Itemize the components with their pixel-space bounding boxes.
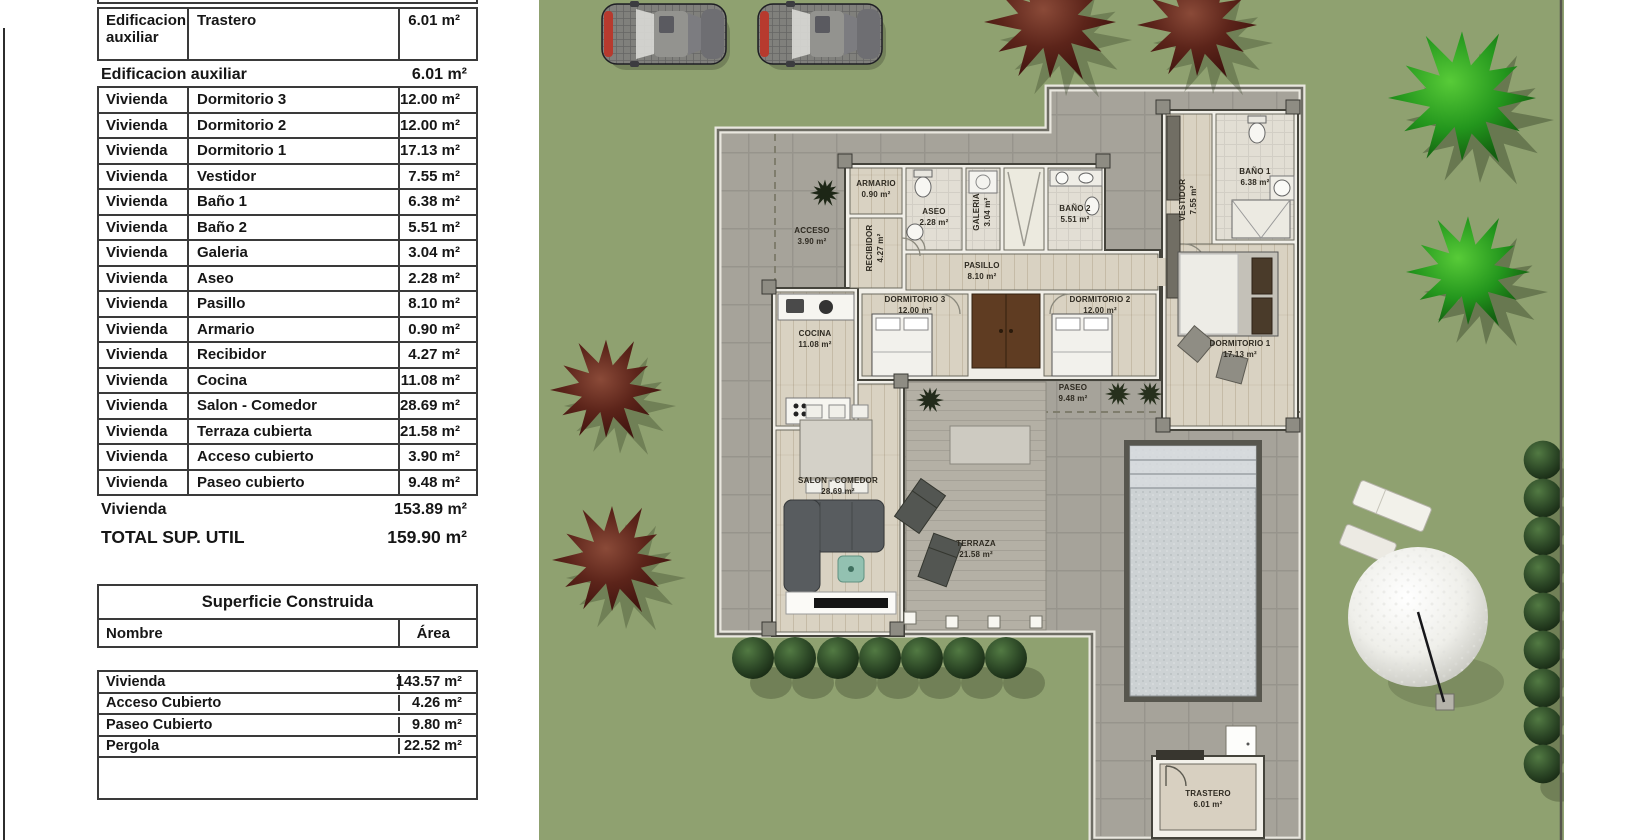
table-row: Vivienda Cocina 11.08 m² bbox=[97, 367, 478, 395]
table-row: Vivienda Paseo cubierto 9.48 m² bbox=[97, 469, 478, 497]
room-label-dormitorio2: DORMITORIO 212.00 m² bbox=[1070, 295, 1131, 317]
pool bbox=[1124, 440, 1262, 702]
washer-icon bbox=[969, 171, 997, 193]
table-row: Vivienda Vestidor 7.55 m² bbox=[97, 163, 478, 191]
table-header-row: Nombre Área bbox=[97, 618, 478, 648]
table-row: Pergola 22.52 m² bbox=[97, 735, 478, 759]
table-gap bbox=[97, 648, 478, 672]
shower-icon bbox=[1232, 200, 1290, 238]
table-superficie-construida: Superficie Construida Nombre Área Vivien… bbox=[97, 584, 478, 800]
room-label-trastero: TRASTERO6.01 m² bbox=[1185, 789, 1231, 811]
table-row: Vivienda Dormitorio 1 17.13 m² bbox=[97, 137, 478, 165]
table-row: Vivienda 143.57 m² bbox=[97, 670, 478, 694]
table-row: Vivienda Terraza cubierta 21.58 m² bbox=[97, 418, 478, 446]
sink-icon bbox=[1056, 172, 1068, 184]
table-row: Edificacion auxiliar Trastero 6.01 m² bbox=[97, 7, 478, 61]
room-label-dormitorio1: DORMITORIO 117.13 m² bbox=[1210, 339, 1271, 361]
toilet-icon bbox=[914, 170, 932, 177]
sink-icon bbox=[1274, 180, 1290, 196]
car-icon bbox=[602, 1, 730, 70]
col-header-nombre: Nombre bbox=[99, 620, 398, 646]
total-superficie-util: TOTAL SUP. UTIL 159.90 m² bbox=[97, 523, 478, 550]
cell-area: 6.01 m² bbox=[398, 9, 476, 59]
table-row: Vivienda Galeria 3.04 m² bbox=[97, 239, 478, 267]
table-row: Acceso Cubierto 4.26 m² bbox=[97, 692, 478, 716]
terrace-table-icon bbox=[950, 426, 1030, 464]
table-row: Vivienda Baño 1 6.38 m² bbox=[97, 188, 478, 216]
room-label-bano1: BAÑO 16.38 m² bbox=[1239, 167, 1270, 189]
room-label-armario: ARMARIO0.90 m² bbox=[856, 179, 896, 201]
table-row: Vivienda Aseo 2.28 m² bbox=[97, 265, 478, 293]
floor-plan-document: Edificacion auxiliar Trastero 6.01 m² Ed… bbox=[0, 0, 1638, 840]
table-superficie-util: Edificacion auxiliar Trastero 6.01 m² Ed… bbox=[97, 0, 478, 550]
sun-lounger-icon bbox=[1352, 480, 1432, 533]
table-row: Vivienda Recibidor 4.27 m² bbox=[97, 341, 478, 369]
table-row-clipped-top bbox=[97, 0, 478, 4]
sink-icon bbox=[1079, 173, 1093, 183]
subtotal-vivienda: Vivienda 153.89 m² bbox=[97, 496, 478, 523]
table-title: Superficie Construida bbox=[97, 584, 478, 620]
table-row: Vivienda Acceso cubierto 3.90 m² bbox=[97, 443, 478, 471]
room-label-pasillo: PASILLO8.10 m² bbox=[964, 261, 999, 283]
bed-icon bbox=[1178, 252, 1278, 336]
table-row: Vivienda Dormitorio 3 12.00 m² bbox=[97, 86, 478, 114]
room-label-salon: SALON - COMEDOR28.69 m² bbox=[798, 476, 878, 498]
room-label-galeria: GALERIA3.04 m² bbox=[972, 193, 994, 230]
car-icon bbox=[758, 1, 886, 70]
room-label-dormitorio3: DORMITORIO 312.00 m² bbox=[885, 295, 946, 317]
col-header-area: Área bbox=[398, 620, 476, 646]
area-tables-panel: Edificacion auxiliar Trastero 6.01 m² Ed… bbox=[97, 0, 478, 800]
bed-icon bbox=[1052, 314, 1112, 376]
room-label-recibidor: RECIBIDOR4.27 m² bbox=[865, 225, 887, 272]
room-label-cocina: COCINA11.08 m² bbox=[798, 329, 831, 351]
cell-room: Trastero bbox=[187, 9, 398, 59]
room-label-vestidor: VESTIDOR7.55 m² bbox=[1178, 179, 1200, 222]
site-plan-graphic bbox=[539, 0, 1564, 840]
table-row: Vivienda Baño 2 5.51 m² bbox=[97, 214, 478, 242]
table-row: Vivienda Pasillo 8.10 m² bbox=[97, 290, 478, 318]
table-row: Vivienda Armario 0.90 m² bbox=[97, 316, 478, 344]
table-row: Vivienda Salon - Comedor 28.69 m² bbox=[97, 392, 478, 420]
bed-icon bbox=[872, 314, 932, 376]
room-label-aseo: ASEO2.28 m² bbox=[920, 207, 949, 229]
room-label-acceso: ACCESO3.90 m² bbox=[794, 226, 829, 248]
room-label-paseo: PASEO9.48 m² bbox=[1059, 383, 1088, 405]
table-row-partial bbox=[97, 756, 478, 800]
dome-structure bbox=[1339, 480, 1504, 710]
room-label-bano2: BAÑO 25.51 m² bbox=[1059, 204, 1090, 226]
table-row: Paseo Cubierto 9.80 m² bbox=[97, 713, 478, 737]
site-plan: ACCESO3.90 m² RECIBIDOR4.27 m² ARMARIO0.… bbox=[539, 0, 1564, 840]
subtotal-edificacion-auxiliar: Edificacion auxiliar 6.01 m² bbox=[97, 61, 478, 88]
page-left-rule bbox=[3, 28, 5, 840]
cell-group: Edificacion auxiliar bbox=[99, 9, 187, 59]
room-label-terraza: TERRAZA21.58 m² bbox=[956, 539, 996, 561]
tv-icon bbox=[814, 598, 888, 608]
table-row: Vivienda Dormitorio 2 12.00 m² bbox=[97, 112, 478, 140]
toilet-icon bbox=[1248, 116, 1266, 123]
